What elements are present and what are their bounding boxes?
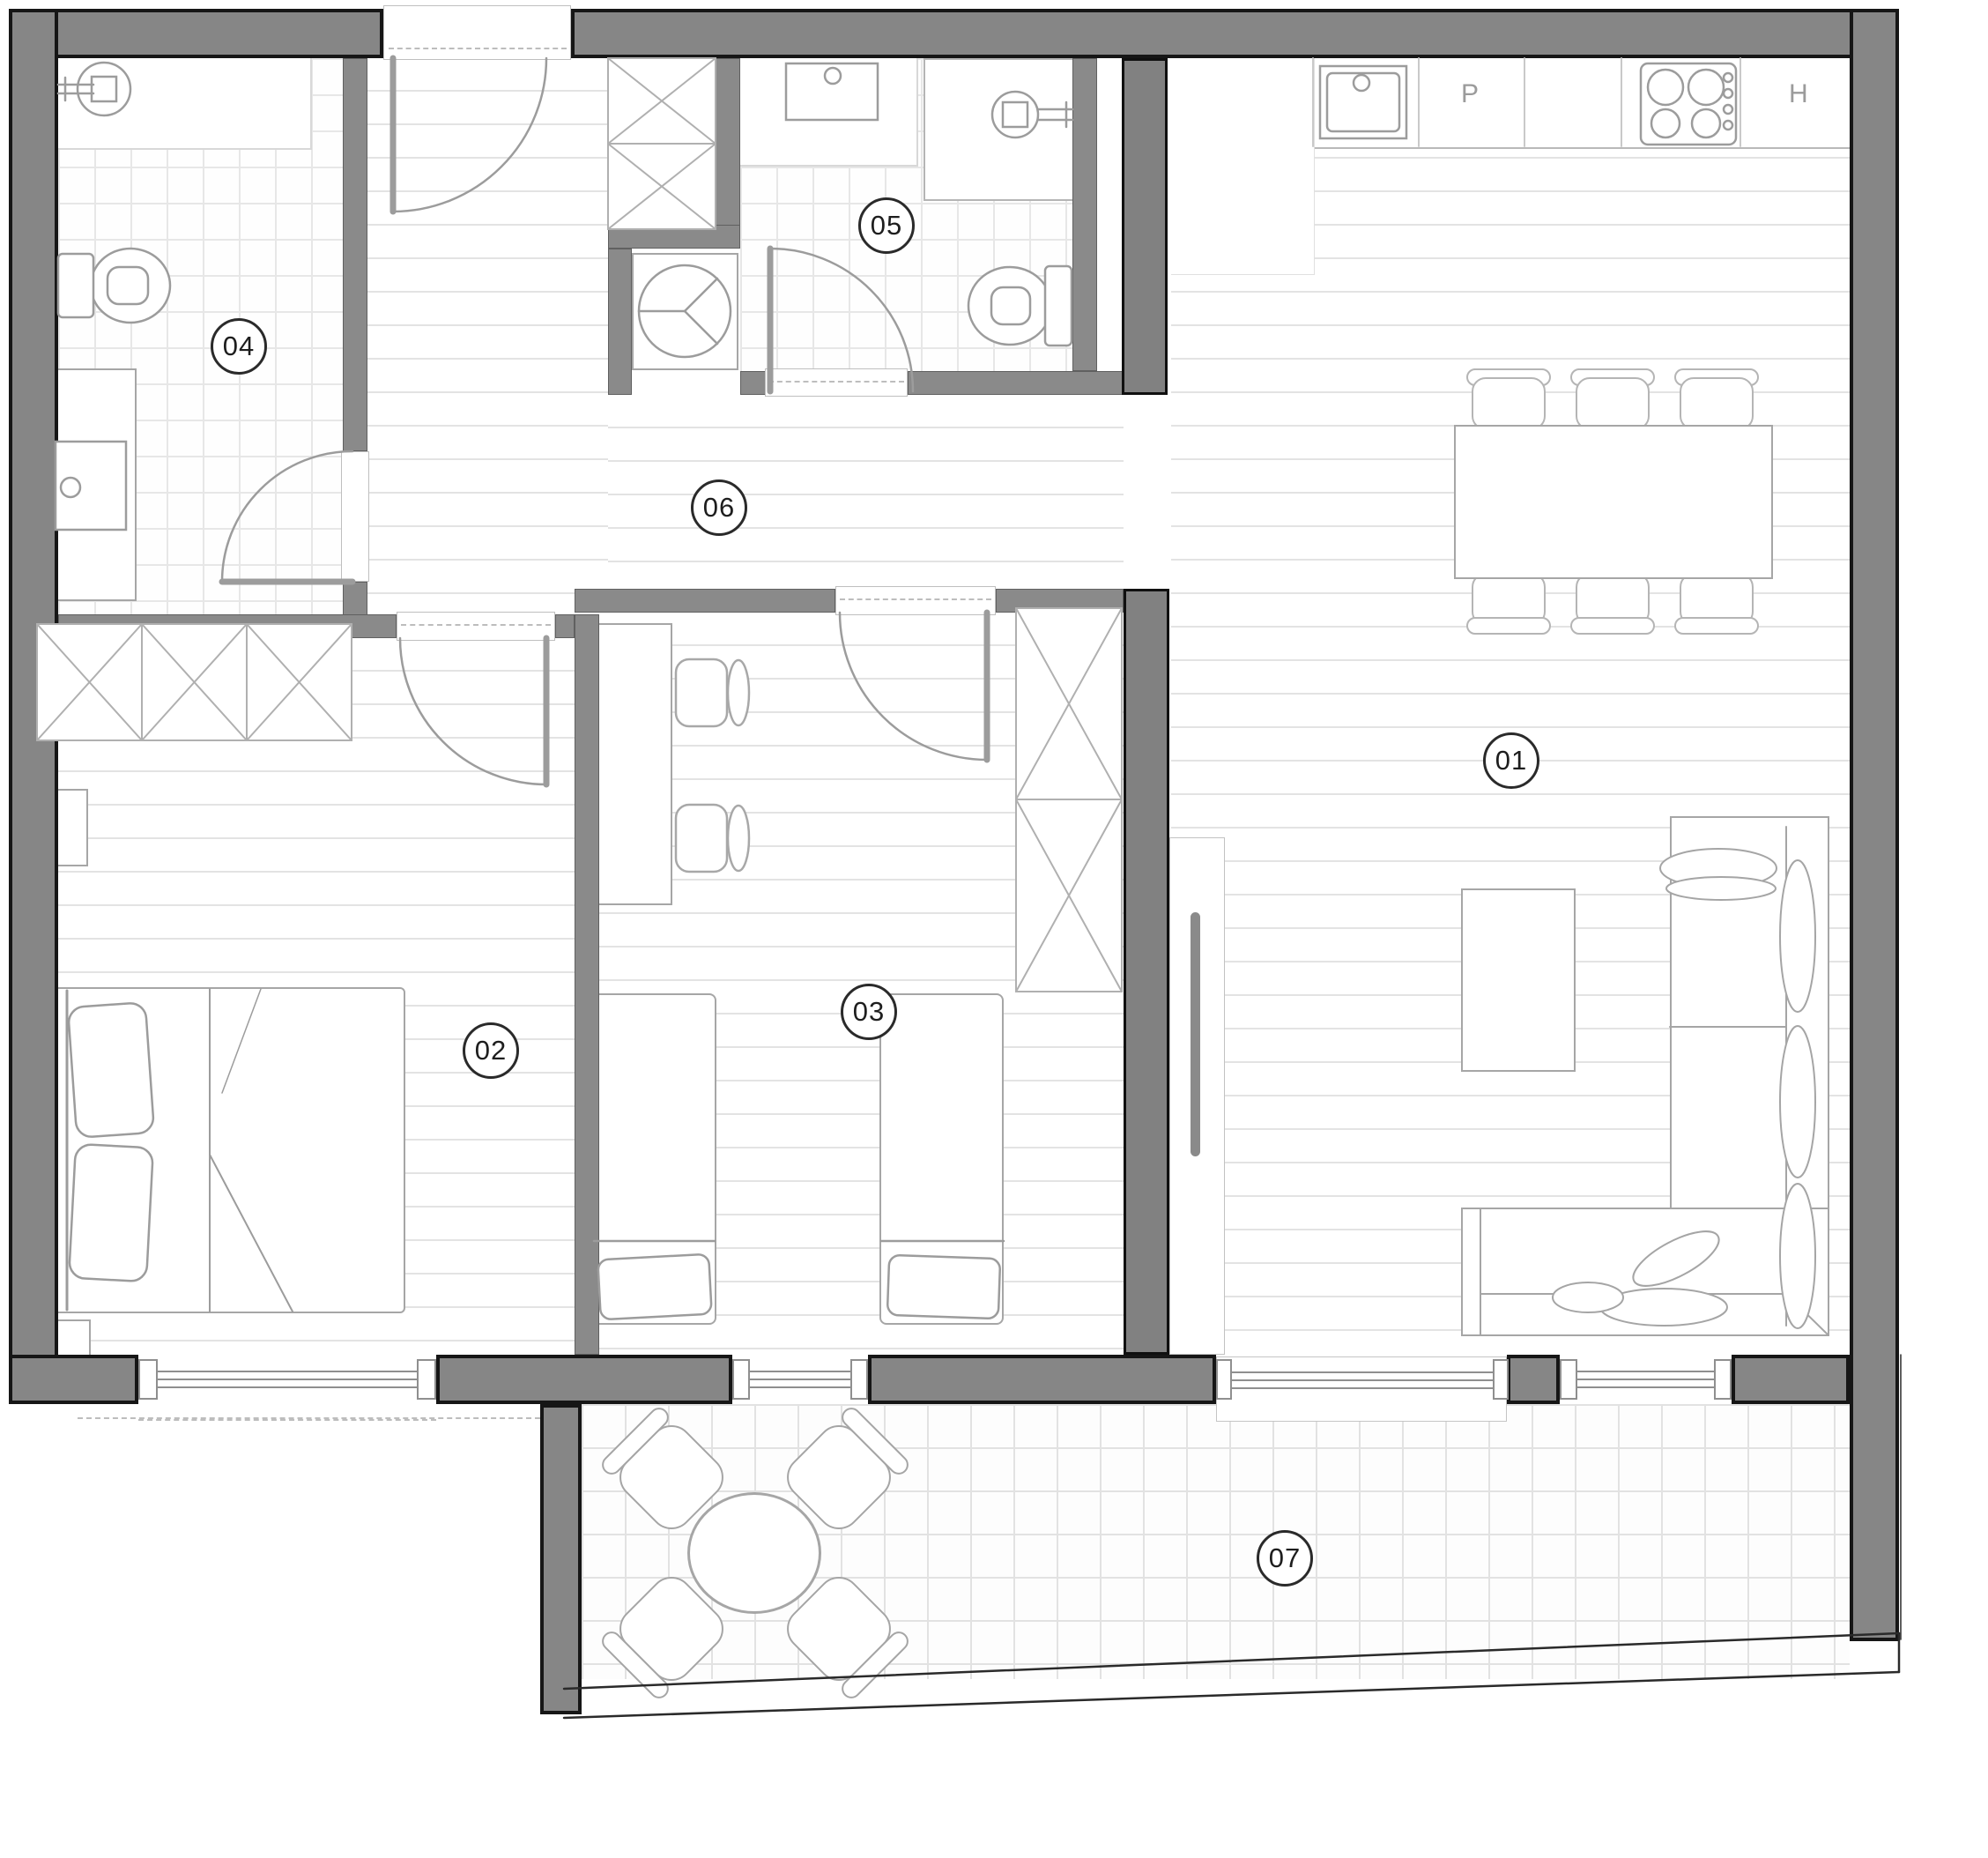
sink-04: [56, 442, 126, 530]
kitchen-unit-p-label: P: [1461, 79, 1479, 109]
room-label-04: 04: [211, 318, 267, 375]
toilet-05: [968, 266, 1072, 346]
wardrobe-bed02: [37, 624, 352, 740]
cooktop: [1641, 63, 1736, 145]
room-label-03-text: 03: [853, 996, 885, 1028]
room-label-01: 01: [1483, 732, 1539, 789]
bed03-details: [594, 1241, 1004, 1319]
bath05-door: [770, 249, 913, 391]
desk-chair: [676, 659, 749, 872]
sink-05: [786, 63, 878, 120]
kitchen-sink: [1320, 66, 1406, 138]
shower-head-icon-05: [992, 92, 1072, 137]
room-label-07: 07: [1257, 1530, 1313, 1587]
sofa-cushions: [1553, 849, 1815, 1328]
room-label-03: 03: [841, 984, 897, 1040]
bed02-door: [400, 638, 546, 784]
balcony-table-top: [688, 1493, 820, 1613]
bath04-door: [222, 451, 352, 582]
room-label-07-text: 07: [1269, 1542, 1301, 1574]
room-label-01-text: 01: [1495, 745, 1527, 777]
room-label-05: 05: [858, 197, 915, 254]
wardrobe-bed03: [1016, 608, 1122, 992]
room-label-04-text: 04: [223, 331, 255, 362]
entry-door: [393, 58, 546, 212]
room-label-06-text: 06: [703, 492, 735, 524]
room-label-02: 02: [463, 1022, 519, 1079]
kitchen-unit-h-label: H: [1789, 79, 1808, 109]
room-label-02-text: 02: [475, 1035, 507, 1066]
toilet-04: [58, 249, 170, 323]
washing-machine-drum: [639, 265, 731, 357]
plan-lineart: [0, 0, 1988, 1858]
shower-head-icon-04: [58, 63, 130, 115]
room-label-05-text: 05: [871, 210, 902, 242]
room-label-06: 06: [691, 479, 747, 536]
floor-plan: 01 02 03 04 05 06 07 P H: [0, 0, 1988, 1858]
bed03-door: [840, 613, 987, 760]
wardrobe-hallway: [608, 58, 716, 229]
bed02-details: [67, 989, 293, 1312]
